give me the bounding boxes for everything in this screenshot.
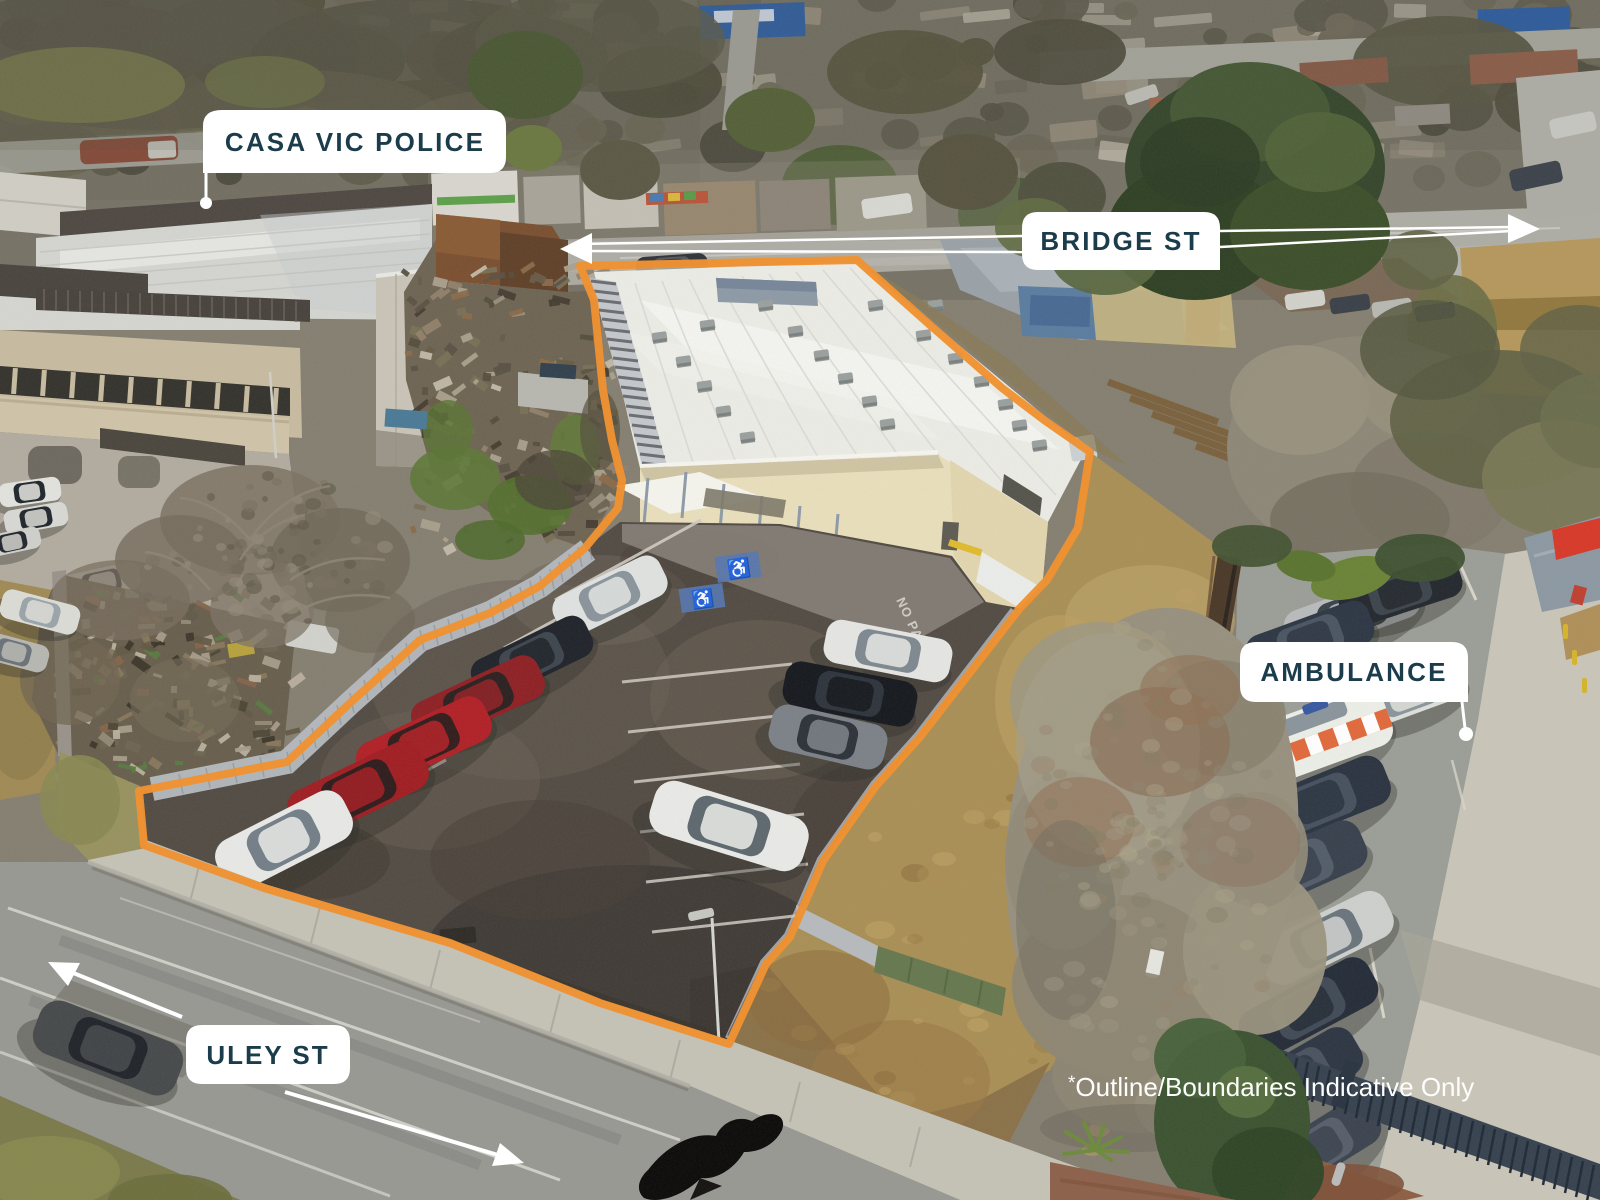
svg-text:ULEY ST: ULEY ST [206, 1040, 329, 1070]
svg-text:BRIDGE ST: BRIDGE ST [1040, 226, 1201, 256]
svg-text:CASA VIC POLICE: CASA VIC POLICE [225, 127, 485, 157]
svg-text:*Outline/Boundaries Indicative: *Outline/Boundaries Indicative Only [1068, 1072, 1474, 1102]
svg-text:AMBULANCE: AMBULANCE [1260, 657, 1447, 687]
